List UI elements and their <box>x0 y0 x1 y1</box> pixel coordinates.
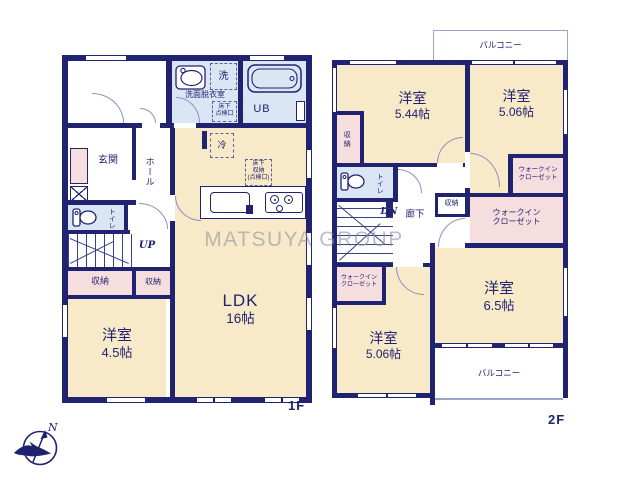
wall <box>202 131 207 149</box>
washroom-label: 洗面脱衣室 <box>168 90 242 99</box>
fridge-label: 冷 <box>210 140 234 151</box>
bath-counter <box>296 101 305 121</box>
burner-dot <box>288 199 290 201</box>
toilet-icon <box>340 171 366 192</box>
wall <box>508 154 563 158</box>
window <box>563 268 568 316</box>
wall <box>124 205 128 230</box>
watermark: MATSUYA GROUP <box>204 228 404 254</box>
bedroom-506a-size: 5.06帖 <box>470 105 563 119</box>
kitchen-faucet <box>246 205 253 214</box>
bedroom-65-size: 6.5帖 <box>435 298 563 313</box>
wall <box>360 115 364 163</box>
window-mullion <box>281 397 283 403</box>
kitchen-sink <box>210 192 250 213</box>
door-gap <box>437 163 463 167</box>
window <box>250 55 284 61</box>
wall <box>563 348 568 398</box>
wall <box>465 243 568 248</box>
burner-icon <box>276 205 283 212</box>
wic-b-label: ウォークイン クローゼット <box>470 208 563 227</box>
corridor-label: 廊下 <box>400 209 430 220</box>
wall <box>337 301 386 305</box>
window-mullion <box>386 393 388 398</box>
ldk-size: 16帖 <box>175 311 306 327</box>
compass-n-label: N <box>47 421 58 434</box>
floor-label-2f: 2F <box>548 412 565 427</box>
stairs-dn-label: DN <box>377 206 401 217</box>
bedroom-506a-name: 洋室 <box>470 88 563 105</box>
bedroom-506b-size: 5.06帖 <box>337 347 430 361</box>
window-mullion <box>213 397 215 403</box>
storage-box-label: 収納 <box>437 200 466 208</box>
hall-label: ホール <box>144 147 155 197</box>
wall <box>435 214 468 217</box>
door-arc <box>92 93 124 123</box>
floorplan-page: 洗 洗面脱衣室 床下 点検口 UB 玄関 ホール トイレ UP 収納 収納 冷 … <box>0 0 640 480</box>
ldk-name: LDK <box>175 291 306 311</box>
window <box>306 150 312 178</box>
bedroom-45-name: 洋室 <box>68 327 166 345</box>
toilet-icon <box>72 207 98 228</box>
balcony-top-label: バルコニー <box>433 40 568 50</box>
underfloor-hatch-label: 床下 点検口 <box>212 104 237 118</box>
window <box>350 60 396 65</box>
storage-b-label-1f: 収納 <box>137 277 169 286</box>
toilet-label-2f: トイレ <box>375 169 383 197</box>
door-arc <box>438 218 465 247</box>
storage-a-label-1f: 収納 <box>72 276 128 287</box>
compass-north-icon: N <box>13 417 67 473</box>
window-mullion <box>528 343 530 348</box>
wall <box>170 128 175 397</box>
wall <box>62 267 170 271</box>
door-arc <box>139 203 168 229</box>
floor-label-1f: 1F <box>288 398 305 413</box>
washbasin-icon <box>175 65 206 90</box>
window <box>332 68 337 112</box>
stairs-up-label: UP <box>135 240 159 252</box>
wall <box>435 193 568 197</box>
wic-a-label: ウォークイン クローゼット <box>513 166 563 181</box>
door-arc <box>398 169 422 193</box>
window <box>306 298 312 330</box>
bedroom-544-name: 洋室 <box>360 90 465 107</box>
room-ldk <box>175 128 306 397</box>
washer-label: 洗 <box>210 71 237 83</box>
window <box>86 55 126 61</box>
door-arc <box>140 108 156 123</box>
bedroom-506b-name: 洋室 <box>337 330 430 347</box>
wic-c-label: ウォークイン クローゼット <box>334 275 384 289</box>
wall <box>132 267 136 295</box>
entrance-label: 玄関 <box>86 155 130 167</box>
bedroom-544-size: 5.44帖 <box>360 107 465 121</box>
balcony-bottom-label: バルコニー <box>435 368 563 378</box>
underfloor-storage-label: 床下 収納 (点検口) <box>245 161 272 182</box>
bedroom-45-size: 4.5帖 <box>68 345 166 360</box>
door-gap <box>174 123 196 128</box>
wall <box>430 243 435 405</box>
storage-544-label: 収納 <box>342 123 350 157</box>
window-mullion <box>466 343 468 348</box>
bathtub-icon <box>247 64 302 93</box>
window <box>107 397 145 403</box>
wall <box>132 128 136 180</box>
bath-label: UB <box>242 103 282 116</box>
bedroom-65-name: 洋室 <box>435 280 563 298</box>
door-gap <box>142 123 160 128</box>
window-mullion <box>513 60 515 65</box>
wall <box>62 295 170 299</box>
burner-dot <box>274 199 276 201</box>
window <box>563 90 568 134</box>
toilet-label-1f: トイレ <box>107 206 115 230</box>
